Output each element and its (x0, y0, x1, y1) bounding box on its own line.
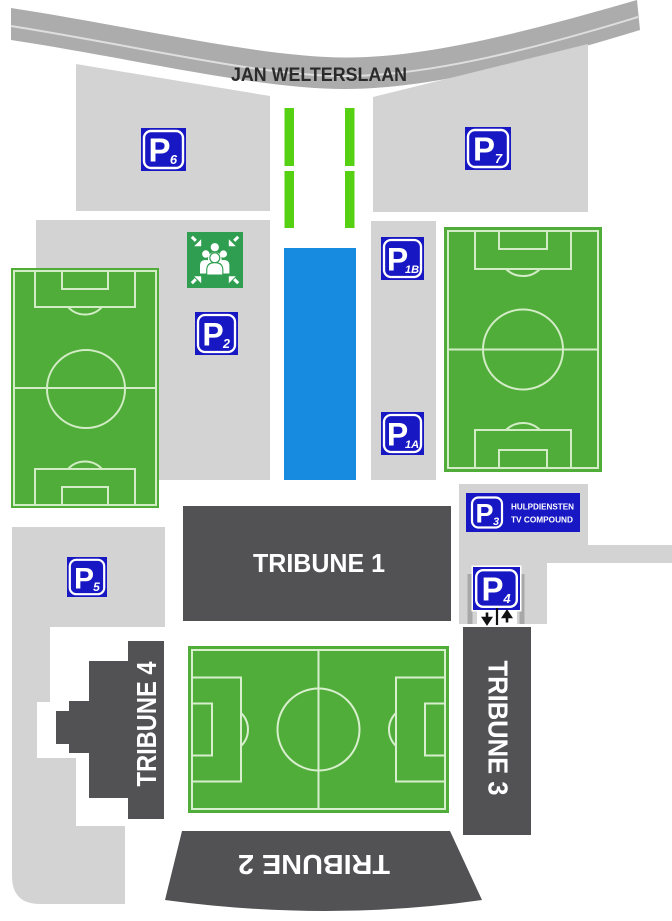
svg-text:P: P (481, 571, 503, 608)
svg-text:P: P (475, 499, 493, 529)
svg-text:TRIBUNE 2: TRIBUNE 2 (238, 849, 390, 880)
svg-text:2: 2 (222, 337, 230, 351)
svg-text:7: 7 (495, 151, 503, 166)
svg-text:TRIBUNE 1: TRIBUNE 1 (253, 548, 385, 578)
svg-text:3: 3 (493, 516, 499, 528)
svg-text:JAN WELTERSLAAN: JAN WELTERSLAAN (231, 65, 407, 86)
svg-text:HULPDIENSTEN: HULPDIENSTEN (511, 503, 574, 512)
svg-text:P: P (473, 131, 495, 168)
svg-text:1B: 1B (405, 264, 419, 276)
svg-text:P: P (148, 132, 170, 169)
svg-text:5: 5 (93, 580, 100, 594)
svg-text:4: 4 (502, 591, 511, 606)
svg-text:1A: 1A (405, 439, 419, 451)
svg-text:6: 6 (170, 152, 178, 167)
svg-text:TV COMPOUND: TV COMPOUND (511, 516, 573, 525)
svg-text:P: P (202, 317, 223, 353)
svg-text:TRIBUNE 4: TRIBUNE 4 (131, 661, 162, 787)
svg-text:P: P (74, 563, 94, 596)
svg-text:TRIBUNE 3: TRIBUNE 3 (483, 661, 514, 796)
